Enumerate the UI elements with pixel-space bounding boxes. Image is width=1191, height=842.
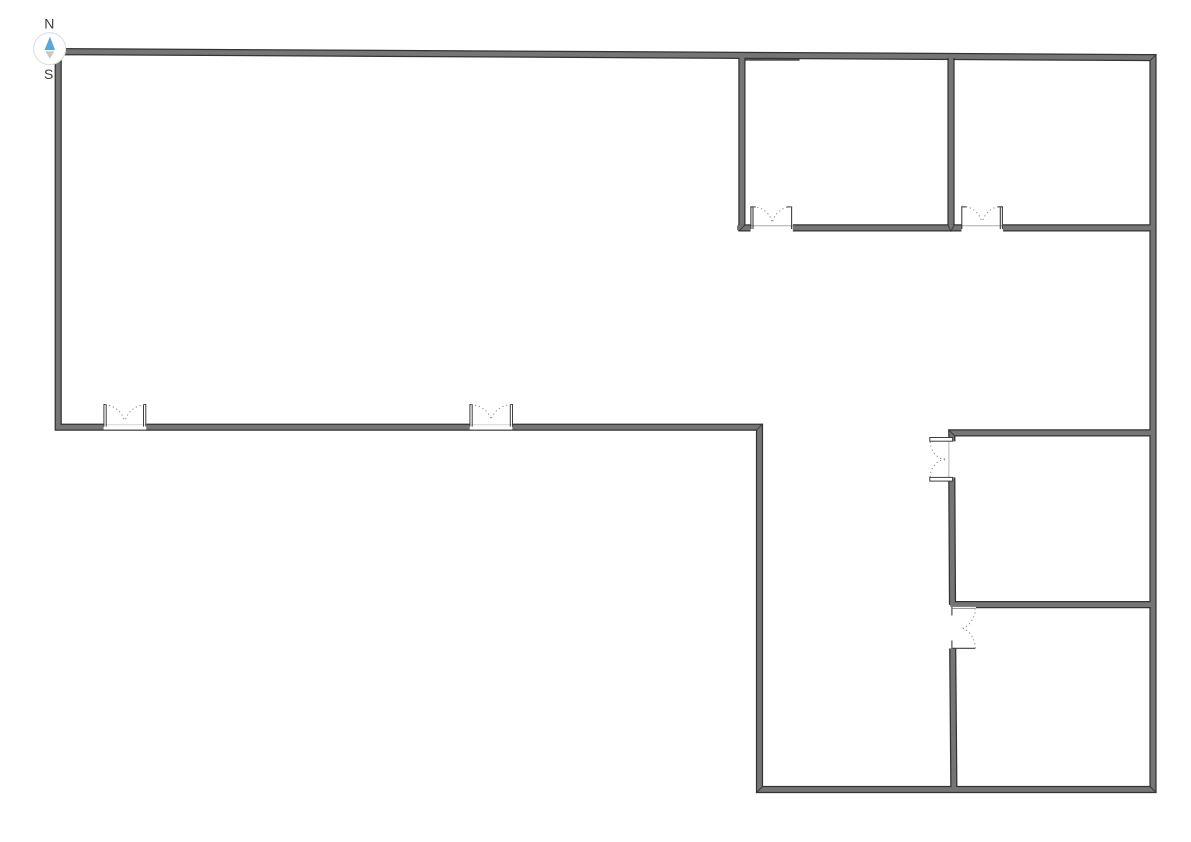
svg-text:S: S: [44, 66, 53, 82]
svg-text:N: N: [44, 16, 54, 32]
